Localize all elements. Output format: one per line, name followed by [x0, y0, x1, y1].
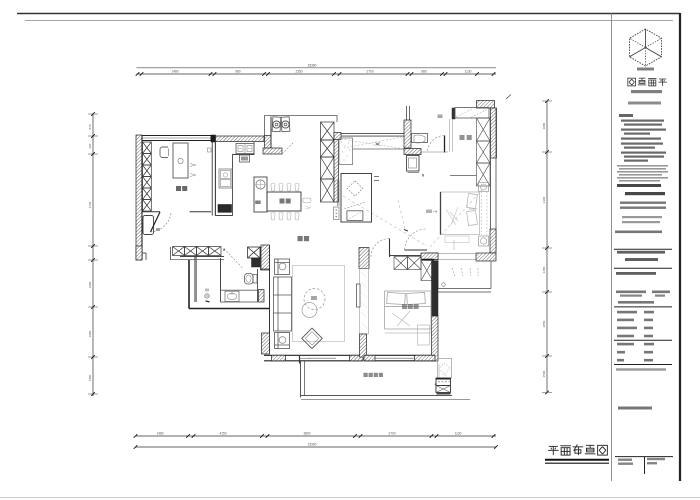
svg-text:1900: 1900: [88, 281, 92, 288]
svg-text:1450: 1450: [542, 266, 546, 273]
svg-text:3800: 3800: [303, 431, 310, 435]
svg-text:1480: 1480: [171, 70, 178, 74]
svg-text:2850: 2850: [542, 320, 546, 327]
svg-text:15300: 15300: [308, 443, 317, 447]
svg-text:2700: 2700: [388, 431, 395, 435]
svg-text:980: 980: [235, 70, 241, 74]
svg-text:3730: 3730: [88, 201, 92, 208]
svg-text:2700: 2700: [366, 70, 373, 74]
svg-text:1130: 1130: [455, 431, 462, 435]
svg-text:4150: 4150: [219, 431, 226, 435]
svg-text:1080: 1080: [542, 122, 546, 129]
svg-text:1480: 1480: [156, 431, 163, 435]
svg-text:2350: 2350: [295, 70, 302, 74]
svg-text:870: 870: [88, 124, 92, 129]
svg-text:1450: 1450: [88, 374, 92, 381]
svg-text:1950: 1950: [88, 330, 92, 337]
svg-text:3100: 3100: [542, 196, 546, 203]
svg-text:880: 880: [421, 70, 427, 74]
svg-text:680: 680: [88, 143, 92, 148]
svg-text:1130: 1130: [465, 70, 472, 74]
svg-text:1500: 1500: [542, 370, 546, 377]
svg-text:15300: 15300: [308, 63, 317, 67]
